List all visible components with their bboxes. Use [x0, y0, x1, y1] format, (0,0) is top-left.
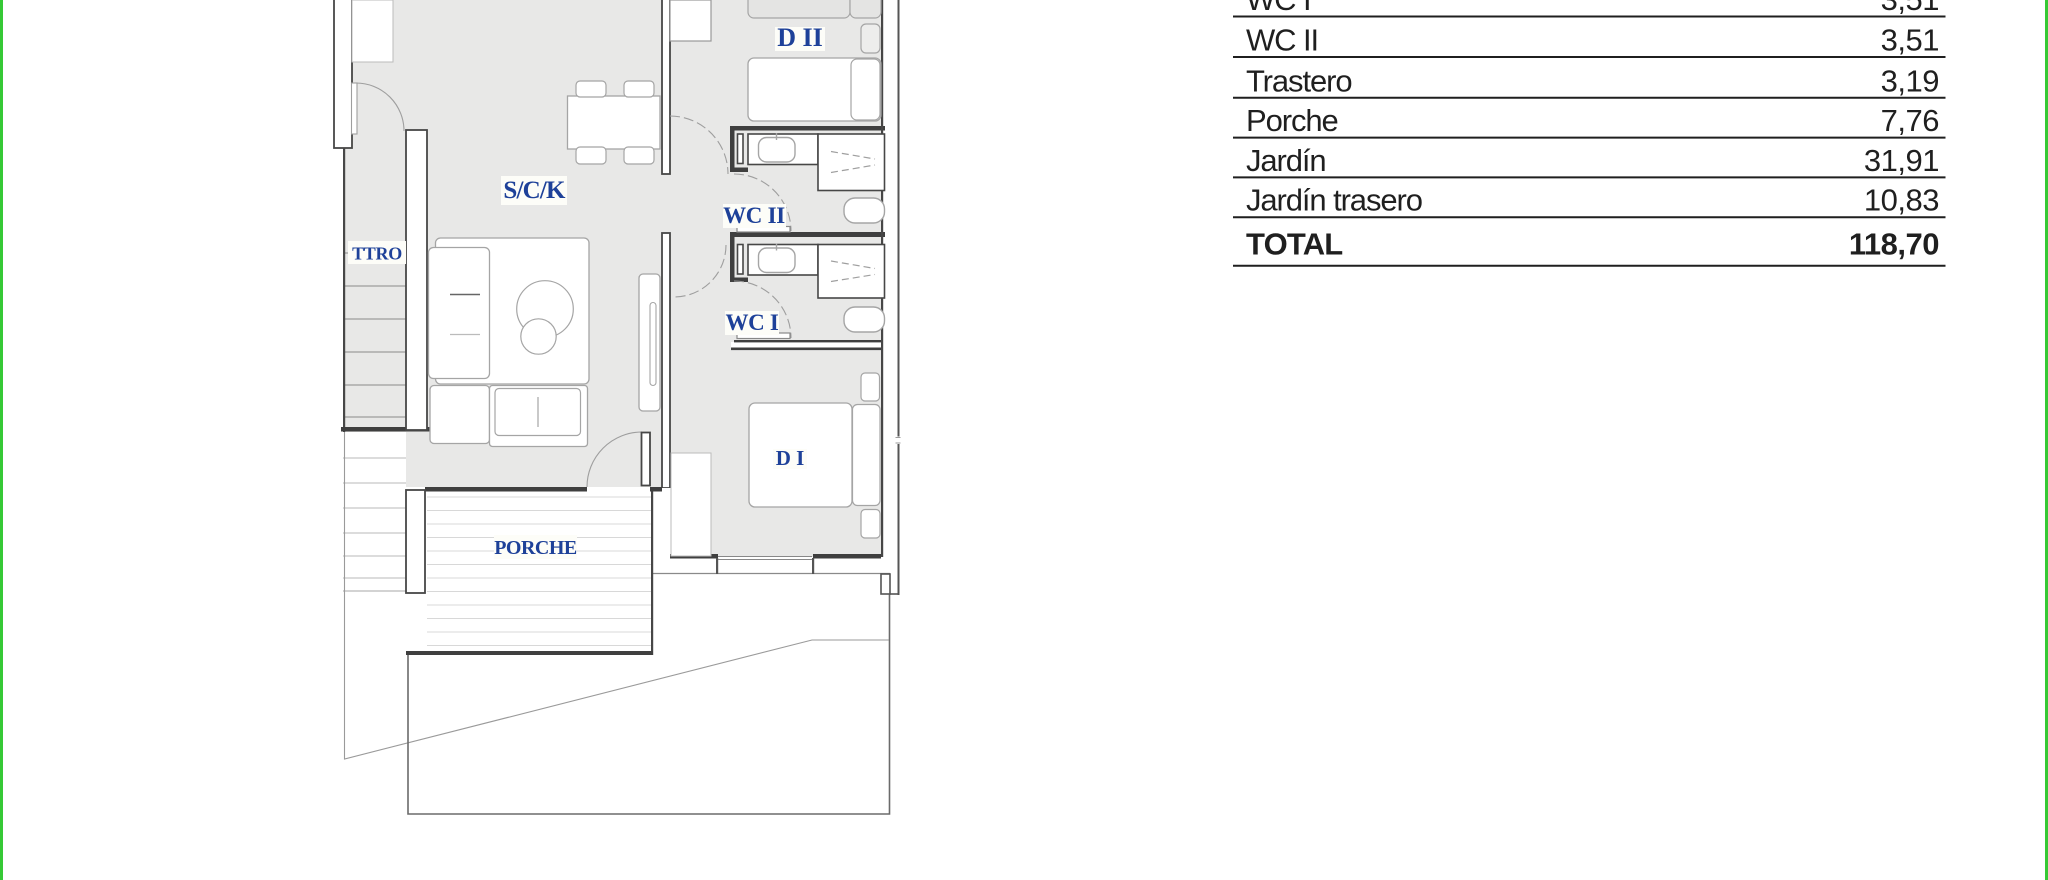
svg-text:3,19: 3,19	[1881, 63, 1939, 98]
svg-text:D II: D II	[777, 23, 823, 52]
svg-text:10,83: 10,83	[1864, 183, 1939, 218]
svg-text:Trastero: Trastero	[1246, 63, 1351, 98]
svg-text:3,51: 3,51	[1881, 23, 1939, 58]
svg-text:S/C/K: S/C/K	[503, 177, 566, 204]
svg-text:D I: D I	[776, 446, 805, 470]
svg-text:Jardín: Jardín	[1246, 143, 1326, 178]
svg-text:118,70: 118,70	[1849, 227, 1939, 262]
svg-text:PORCHE: PORCHE	[494, 537, 577, 559]
svg-text:TOTAL: TOTAL	[1246, 227, 1342, 262]
svg-text:Jardín trasero: Jardín trasero	[1246, 183, 1422, 218]
svg-text:3,51: 3,51	[1881, 0, 1939, 17]
svg-text:TTRO: TTRO	[352, 244, 402, 264]
svg-text:WC II: WC II	[1246, 23, 1318, 58]
svg-text:31,91: 31,91	[1864, 143, 1939, 178]
svg-text:WC II: WC II	[723, 203, 785, 228]
svg-text:WC I: WC I	[725, 310, 778, 335]
svg-text:7,76: 7,76	[1881, 103, 1939, 138]
svg-text:WC I: WC I	[1246, 0, 1310, 17]
svg-text:Porche: Porche	[1246, 103, 1338, 138]
